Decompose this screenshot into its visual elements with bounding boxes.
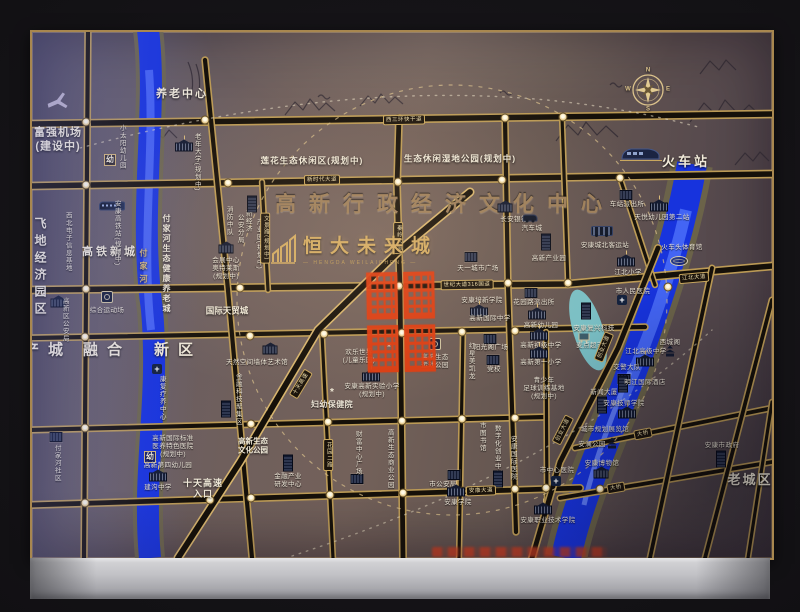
road-badge: 西三环快干道 xyxy=(383,115,425,126)
road-intersection-dot xyxy=(224,179,233,188)
road-badge: 江北大道 xyxy=(679,272,710,285)
map-poi-label: 汽车城 xyxy=(522,225,543,233)
region-label: 国际天贸城 xyxy=(206,306,249,317)
map-poi-label: 青少年 足球训练基地 (规划中) xyxy=(523,377,564,401)
cart-icon xyxy=(579,334,590,341)
project-logo-text: 恒大未来城 — HENGDA WEILAICHENG — xyxy=(303,231,438,266)
map-poi-label: 花园路派出所 xyxy=(513,299,554,307)
region-label: W xyxy=(625,86,631,94)
road-intersection-dot xyxy=(616,174,625,183)
tb-icon xyxy=(581,303,591,320)
sch-icon xyxy=(650,203,668,212)
region-label: 老城区 xyxy=(727,472,772,488)
b-icon xyxy=(620,190,633,200)
road-intersection-dot xyxy=(596,485,605,494)
road-badge: 十天高速 xyxy=(289,368,313,399)
b-icon xyxy=(351,474,364,484)
map-poi-label: 综合运动场 xyxy=(90,307,125,315)
pag-icon xyxy=(608,446,616,449)
region-label: 付家河 xyxy=(139,249,147,288)
road-intersection-dot xyxy=(247,420,256,429)
region-label: 富强机场 (建设中) xyxy=(34,126,82,154)
photo-of-map-board: 富强机场 (建设中)养老中心莲花生态休闲区(规划中)生态休闲湿地公园(规划中)高… xyxy=(0,0,800,612)
map-poi-label: 江北小学 xyxy=(614,269,642,277)
region-label: 幼 xyxy=(104,154,116,166)
road-intersection-dot xyxy=(81,333,90,342)
region-label: 高新行政经济文化中心 xyxy=(275,192,615,218)
b-icon xyxy=(50,432,63,442)
map-poi-label: 西城阁 xyxy=(660,339,681,347)
bank-icon xyxy=(263,346,278,355)
map-poi-label: 高新第一小学 xyxy=(520,359,561,367)
map-poi-label: 市图书馆 xyxy=(478,422,485,452)
map-inner: 富强机场 (建设中)养老中心莲花生态休闲区(规划中)生态休闲湿地公园(规划中)高… xyxy=(30,30,774,560)
road-intersection-dot xyxy=(326,491,335,500)
map-poi-label: 公安分局 xyxy=(236,214,243,244)
sch-icon xyxy=(447,488,465,497)
road-intersection-dot xyxy=(247,494,256,503)
road-intersection-dot xyxy=(559,113,568,122)
map-poi-label: 阳光阁广场 xyxy=(474,344,509,352)
sch-icon xyxy=(530,332,548,341)
bank-icon xyxy=(498,204,513,213)
region-label: 产城 xyxy=(30,342,72,361)
sch-icon xyxy=(362,373,380,382)
tb-icon xyxy=(541,234,551,251)
hosp-icon: + xyxy=(152,364,162,374)
region-label: E xyxy=(666,86,670,94)
sch-icon xyxy=(530,350,548,359)
map-poi-label: 西北电子信息基地 xyxy=(64,212,71,272)
region-label: 高新生态 文化公园 xyxy=(238,437,268,456)
region-label: 付家河生态健康养老城 xyxy=(162,214,170,314)
map-poi-label: 天然空间墙体艺术馆 xyxy=(226,359,288,367)
map-poi-label: 安康职业技术学院 xyxy=(520,517,575,525)
map-poi-label: 安康城北客运站 xyxy=(581,242,629,250)
road-intersection-dot xyxy=(458,415,467,424)
map-poi-label: 安康博物馆 xyxy=(585,460,620,468)
road-intersection-dot xyxy=(511,485,520,494)
red-seal-watermark xyxy=(366,271,436,372)
road-intersection-dot xyxy=(498,176,507,185)
map-poi-label: 安康市政府 xyxy=(705,442,740,450)
project-logo-mark xyxy=(270,233,296,265)
flo-icon: * xyxy=(327,388,337,398)
map-poi-label: 安康技师学院 xyxy=(603,400,644,408)
map-poi-label: 江北高级中学 xyxy=(625,348,666,356)
map-poi-label: 消防中队 xyxy=(225,206,232,236)
road-intersection-dot xyxy=(81,499,90,508)
map-poi-label: 安澜公园 xyxy=(578,441,606,449)
road-intersection-dot xyxy=(399,489,408,498)
map-poi-label: 康复疗养中心 xyxy=(158,376,165,421)
sch-icon xyxy=(534,506,552,515)
region-label: 十天高速 入口 xyxy=(183,478,223,501)
road-badge: 安康大道 xyxy=(466,485,496,496)
sch-icon xyxy=(618,410,636,419)
tb-icon xyxy=(247,196,257,213)
road-intersection-dot xyxy=(320,330,329,339)
car-icon xyxy=(523,215,538,222)
region-label: 养老中心 xyxy=(156,88,208,102)
map-poi-label: 会展中心 奥特莱斯 (规划中) xyxy=(212,257,240,281)
region-label: 火车站 xyxy=(662,154,710,170)
region-label: 高铁新城 xyxy=(82,246,138,260)
region-label: 飞地经济园区 xyxy=(34,217,46,319)
sch-icon xyxy=(175,143,193,152)
project-logo: 恒大未来城 — HENGDA WEILAICHENG — xyxy=(270,231,438,266)
sch-icon xyxy=(617,258,635,267)
map-poi-label: 红星美凯龙 xyxy=(467,342,474,380)
road-intersection-dot xyxy=(246,332,255,341)
road-intersection-dot xyxy=(82,285,91,294)
tb-icon xyxy=(716,451,726,468)
region-label: 生态休闲湿地公园(规划中) xyxy=(404,154,516,165)
sch-icon xyxy=(149,473,167,482)
road-intersection-dot xyxy=(511,327,520,336)
map-poi-label: 新闻大厦 xyxy=(590,389,618,397)
map-poi-label: 党校 xyxy=(487,366,501,374)
red-text-sliver xyxy=(432,547,607,557)
map-poi-label: 安康国际医院 xyxy=(509,436,516,481)
map-board: 富强机场 (建设中)养老中心莲花生态休闲区(规划中)生态休闲湿地公园(规划中)高… xyxy=(30,30,774,560)
region-label: 融合 xyxy=(83,342,131,361)
road-intersection-dot xyxy=(82,118,91,127)
road-badge: 花园二路 xyxy=(323,439,333,471)
sch-icon xyxy=(528,311,546,320)
map-poi-label: 小太阳幼儿园 xyxy=(118,125,125,170)
map-poi-label: 付家河社区 xyxy=(53,444,60,482)
road-badge: 大桥 xyxy=(633,427,653,440)
map-poi-label: 车站派出所 xyxy=(610,201,645,209)
bank-icon xyxy=(594,470,609,479)
map-poi-label: 妇幼保健院 xyxy=(311,400,353,410)
map-poi-label: 新经济 xyxy=(244,210,251,233)
b-icon xyxy=(484,334,497,344)
map-poi-label: 安康高新实验小学 (规划中) xyxy=(344,383,399,399)
tb-icon xyxy=(221,401,231,418)
map-poi-label: 金融产业 研发中心 xyxy=(274,473,302,489)
road-intersection-dot xyxy=(542,484,551,493)
map-poi-label: 金融科技聚集区 xyxy=(234,373,241,426)
road-intersection-dot xyxy=(394,178,403,187)
hosp-icon: + xyxy=(551,476,561,486)
map-poi-label: 交警大队 xyxy=(613,364,641,372)
road-intersection-dot xyxy=(511,414,520,423)
road-badge: 大桥 xyxy=(606,481,626,494)
pag-icon xyxy=(666,354,674,357)
map-poi-label: 高新国际标准 医养特色医院 (规划中) xyxy=(152,435,193,459)
road-intersection-dot xyxy=(236,284,245,293)
map-poi-label: 城市规划展览馆 xyxy=(581,426,629,434)
road-badge: 新时代大道 xyxy=(304,175,340,186)
map-poi-label: 天悦幼儿园第二站 xyxy=(634,214,689,222)
b-icon xyxy=(487,355,500,365)
region-label: 新区 xyxy=(154,342,202,361)
map-poi-label: 数字化创业中心 xyxy=(493,425,500,478)
road-badge: 世纪大道316国道 xyxy=(441,279,494,290)
b-icon xyxy=(465,252,478,262)
bank-icon xyxy=(219,245,234,254)
map-poi-label: 高新区公安局 xyxy=(61,298,68,343)
map-poi-label: 建沟中学 xyxy=(144,484,172,492)
stad-icon xyxy=(670,256,688,266)
map-poi-label: 天一城市广场 xyxy=(457,265,498,273)
road-intersection-dot xyxy=(324,418,333,427)
road-intersection-dot xyxy=(501,114,510,123)
road-intersection-dot xyxy=(564,279,573,288)
map-poi-label: 高新产业园 xyxy=(532,255,567,263)
road-intersection-dot xyxy=(201,116,210,125)
map-poi-label: 高新国际中学 xyxy=(469,315,510,323)
road-badge: 创业大道 xyxy=(552,414,575,445)
road-intersection-dot xyxy=(458,328,467,337)
map-poi-label: 高新生态商业公园 xyxy=(386,429,393,489)
road-intersection-dot xyxy=(82,181,91,190)
tb-icon xyxy=(283,455,293,472)
road-badge: 文景路(规划中) xyxy=(260,213,270,264)
bus-icon xyxy=(591,226,613,236)
map-poi-label: 市人民医院 xyxy=(616,288,651,296)
road-intersection-dot xyxy=(81,424,90,433)
road-intersection-dot xyxy=(504,279,513,288)
road-intersection-dot xyxy=(398,417,407,426)
ball-icon xyxy=(101,291,113,303)
map-poi-label: 老年大学(规划中) xyxy=(193,133,200,192)
project-name: 恒大未来城 xyxy=(303,231,438,258)
b-icon xyxy=(525,288,538,298)
road-intersection-dot xyxy=(664,283,673,292)
map-poi-label: 火车头体育馆 xyxy=(661,244,702,252)
display-ledge xyxy=(30,558,770,599)
region-label: 莲花生态休闲区(规划中) xyxy=(261,156,364,167)
project-name-latin: — HENGDA WEILAICHENG — xyxy=(303,260,438,266)
b-icon xyxy=(448,470,461,480)
map-poi-label: 市中心医院 xyxy=(540,467,575,475)
region-label: N xyxy=(646,67,650,75)
region-label: S xyxy=(646,106,650,114)
map-poi-label: 明江国际酒店 xyxy=(624,379,665,387)
map-poi-label: 财富中心广场 xyxy=(354,431,361,476)
hosp-icon: + xyxy=(617,295,627,305)
map-poi-label: 安康高铁站(规划中) xyxy=(113,200,120,266)
map-poi-label: 安康学院 xyxy=(444,499,472,507)
